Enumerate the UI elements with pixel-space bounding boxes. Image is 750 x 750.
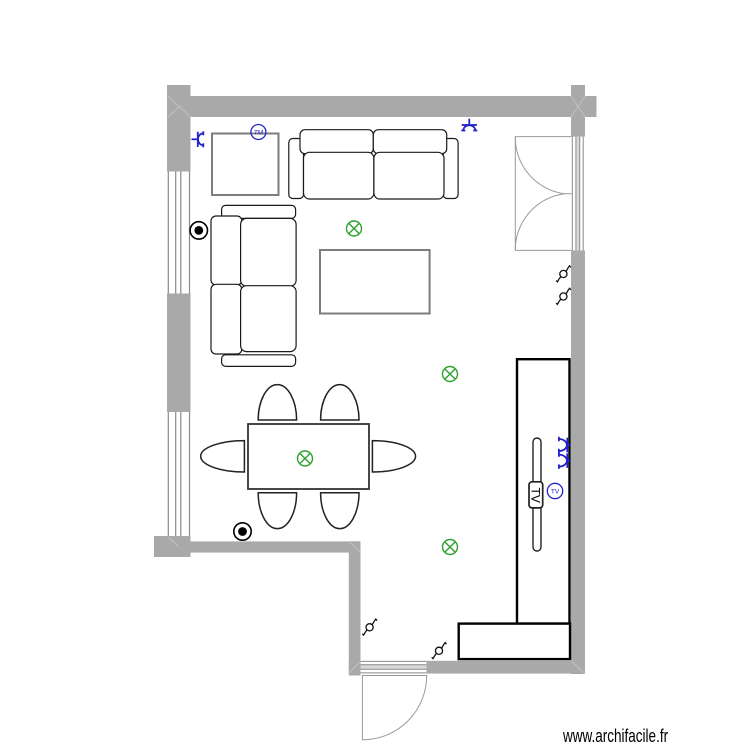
svg-text:TV: TV	[551, 489, 560, 496]
svg-text:TM: TM	[254, 130, 264, 137]
svg-text:TV: TV	[529, 488, 543, 503]
